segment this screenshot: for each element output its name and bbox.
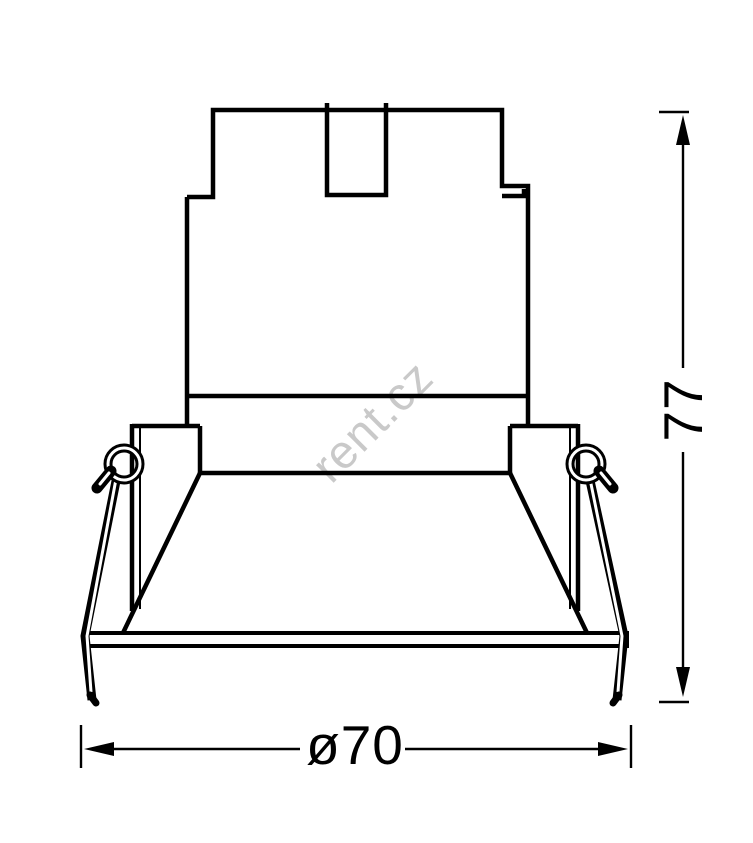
trim-ring — [86, 633, 627, 646]
diameter-dimension-label: ø70 — [306, 714, 404, 776]
technical-drawing-canvas: rent.cz — [0, 0, 753, 843]
right-spring-foot — [613, 695, 619, 703]
left-spring-foot — [90, 695, 96, 703]
drawing-page: rent.cz — [0, 0, 753, 843]
height-dimension-label: 77 — [652, 378, 714, 441]
